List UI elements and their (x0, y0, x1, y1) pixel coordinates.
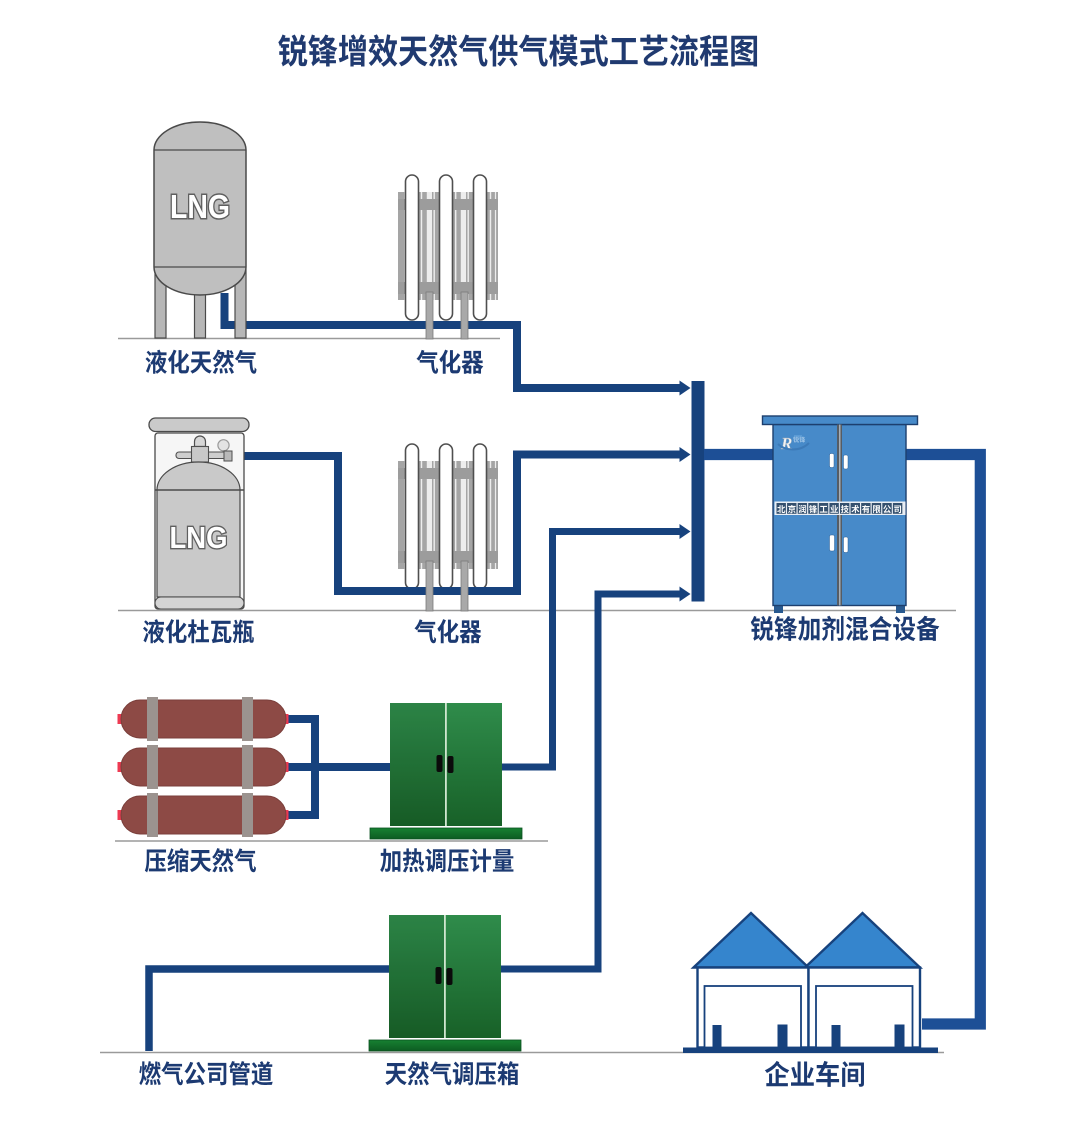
svg-text:LNG: LNG (170, 188, 230, 225)
svg-text:LNG: LNG (170, 520, 228, 555)
